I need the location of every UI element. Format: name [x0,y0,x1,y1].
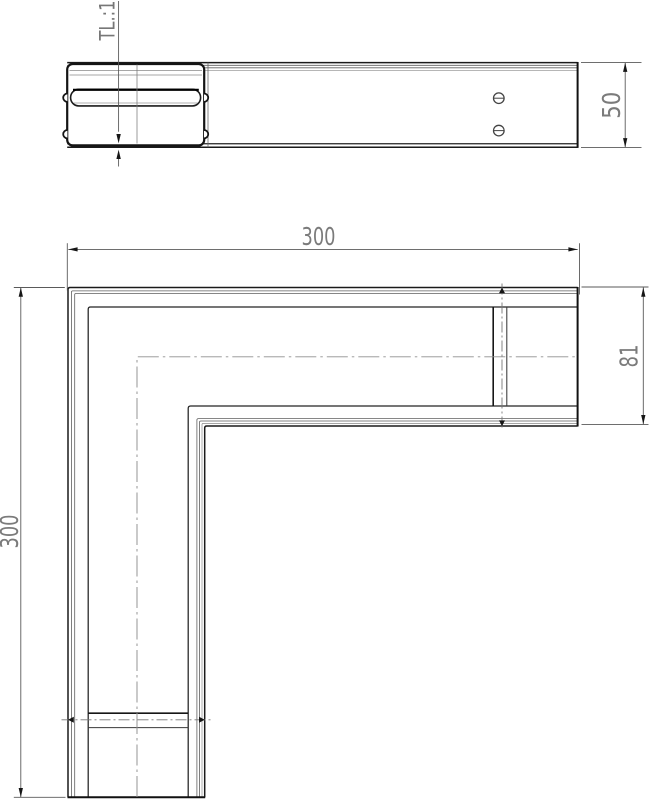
cad-drawing: 300 300 81 50 TL.: [0,0,652,800]
outer-wall-inner-corner [205,426,578,797]
inner-wall-inner-side [188,406,577,797]
dim-top-300-label: 300 [302,222,336,251]
coupling-latch-strip [71,89,201,106]
centerline [137,357,578,797]
dimension-side-height: 50 [581,63,642,148]
main-view [62,284,578,798]
technical-drawing-canvas: 300 300 81 50 TL.: [0,0,652,800]
dim-81-label: 81 [615,345,644,368]
clip-bump [204,94,208,102]
dim-left-300-label: 300 [0,515,24,549]
dim-50-label: 50 [597,92,626,119]
clip-bump [63,94,67,102]
dimension-left-height: 300 [0,288,66,798]
outer-wall [68,288,578,798]
screw-hole [494,93,505,104]
inner-wall-outer-side [88,307,577,797]
top-view [63,1,577,167]
clip-bump [63,130,67,138]
arm-joint-marker [499,284,505,429]
dimension-profile-height: 81 [582,287,649,425]
clip-bump [204,130,208,138]
screw-hole [494,125,505,136]
dimension-top-width: 300 [67,222,579,295]
part-label: TL.:1 [96,1,120,42]
